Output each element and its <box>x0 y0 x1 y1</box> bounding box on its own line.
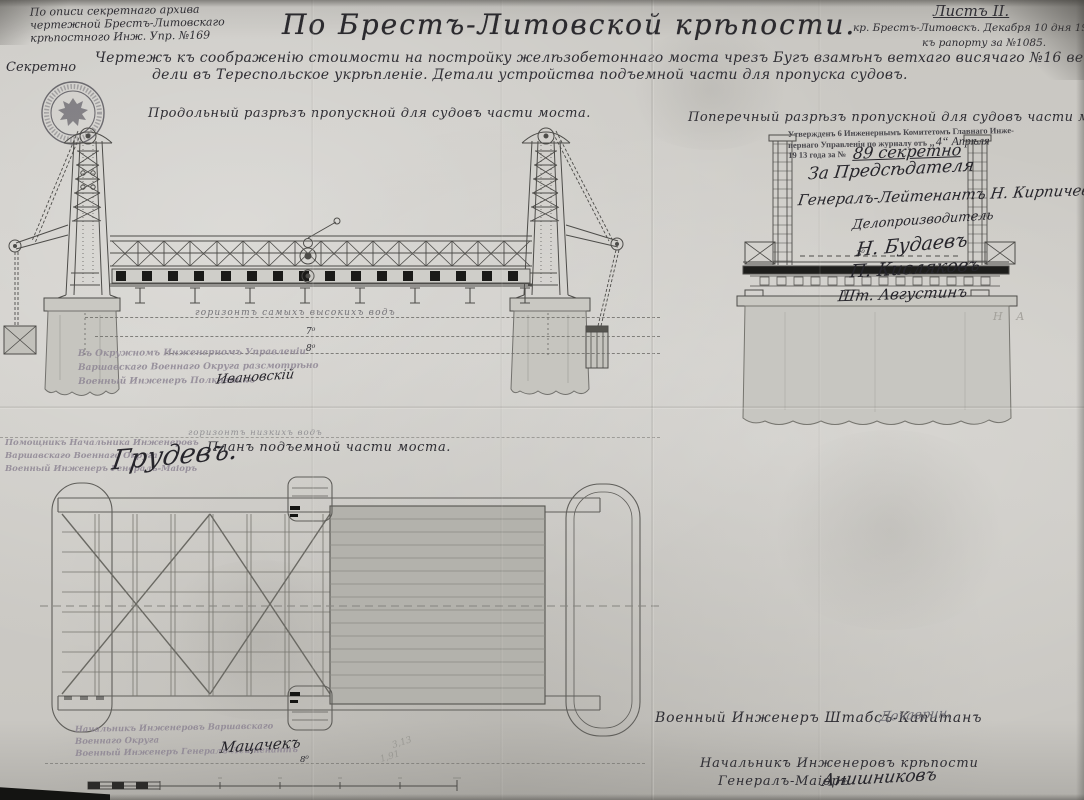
paper-corner-top-right <box>974 0 1084 80</box>
paper-stain <box>760 430 1020 630</box>
cross-section-label: Поперечный разрѣзъ пропускной для судовъ… <box>688 110 1084 125</box>
page-title: По Брестъ-Литовской крѣпости. <box>282 8 856 41</box>
secret-label: Секретно <box>6 60 76 75</box>
plan-mark-8: 8⁰ <box>300 755 309 765</box>
paper-edge-top <box>0 0 1084 7</box>
subtitle-line2: дели въ Тереспольское укрѣпленіе. Детали… <box>152 67 908 83</box>
paper-crease <box>500 0 503 800</box>
paper-crease <box>651 0 654 800</box>
plan-label: Планъ подъемной части моста. <box>207 440 451 455</box>
paper-edge-right <box>1076 0 1084 800</box>
water-line-7 <box>95 336 660 337</box>
paper-crease <box>0 406 1084 409</box>
paper-corner-top-left <box>0 0 70 45</box>
pencil-corner-note: Н А <box>993 310 1029 323</box>
subtitle-line1: Чертежъ къ соображенію стоимости на пост… <box>95 50 1084 66</box>
longitudinal-section-label: Продольный разрѣзъ пропускной для судовъ… <box>148 106 591 121</box>
paper-crease <box>311 0 314 800</box>
plan-water-line <box>45 763 645 764</box>
paper-crease <box>818 0 821 800</box>
scanned-drawing-sheet: По описи секретнаго архива чертежной Бре… <box>0 0 1084 800</box>
high-water-label: горизонтъ самыхъ высокихъ водъ <box>195 308 396 318</box>
paper-edge-bottom <box>0 794 1084 800</box>
